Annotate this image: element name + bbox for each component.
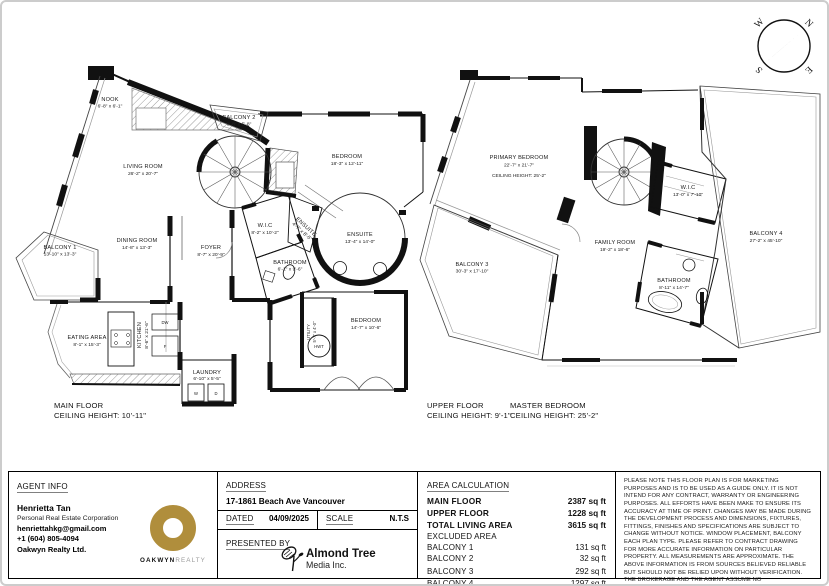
dated-label: DATED <box>226 514 254 525</box>
agent-title: Personal Real Estate Corporation <box>17 515 137 522</box>
svg-text:6'-1" x 9'-6": 6'-1" x 9'-6" <box>278 267 303 273</box>
svg-text:CEILING HEIGHT: 25'-2": CEILING HEIGHT: 25'-2" <box>510 411 598 420</box>
svg-text:8'-11" x 14'-7": 8'-11" x 14'-7" <box>659 285 689 291</box>
room-label-nook: NOOK 6'-8" x 6'-1" <box>98 97 123 110</box>
room-label-bathroom-main: BATHROOM 6'-1" x 9'-6" <box>273 260 307 273</box>
main-floor-title: MAIN FLOOR CEILING HEIGHT: 10'-11" <box>54 401 146 420</box>
svg-text:19'-2" x 18'-6": 19'-2" x 18'-6" <box>600 247 630 253</box>
room-label-family-room: FAMILY ROOM 19'-2" x 18'-6" <box>595 240 636 253</box>
svg-text:14'-8" x 13'-3": 14'-8" x 13'-3" <box>122 245 152 251</box>
svg-text:30'-3" x 17'-10": 30'-3" x 17'-10" <box>456 269 489 275</box>
almond-tree-logo: Almond Tree Media Inc. <box>280 544 376 574</box>
svg-text:NOOK: NOOK <box>101 97 118 103</box>
upper-floor-title: UPPER FLOOR CEILING HEIGHT: 9'-1" <box>427 401 511 420</box>
info-bar: AGENT INFO Henrietta Tan Personal Real E… <box>8 471 821 579</box>
area-row-balcony-2: BALCONY 232 sq ft <box>427 554 606 563</box>
room-label-wic-main: W.I.C 8'-2" x 10'-2" <box>251 223 279 236</box>
svg-text:BALCONY 4: BALCONY 4 <box>749 231 782 237</box>
svg-text:13'-10" x 13'-3": 13'-10" x 13'-3" <box>44 252 77 258</box>
dryer-label: D <box>214 391 217 396</box>
room-label-living-room: LIVING ROOM 26'-2" x 20'-7" <box>123 164 163 177</box>
svg-text:8'-6" x 21'-6": 8'-6" x 21'-6" <box>144 321 150 349</box>
svg-text:BALCONY 1: BALCONY 1 <box>43 245 76 251</box>
svg-text:27'-2" x 45'-10": 27'-2" x 45'-10" <box>750 238 783 244</box>
svg-text:6'-8" x 6'-1": 6'-8" x 6'-1" <box>98 104 123 110</box>
room-label-ensuite: ENSUITE 13'-4" x 14'-0" <box>345 232 375 245</box>
area-calculation-header: AREA CALCULATION <box>427 481 509 492</box>
svg-text:KITCHEN: KITCHEN <box>137 322 143 348</box>
svg-text:8'-8" x 5'-8": 8'-8" x 5'-8" <box>227 122 252 128</box>
svg-text:BATHROOM: BATHROOM <box>657 278 691 284</box>
main-floor-plan: NOOK 6'-8" x 6'-1" BALCONY 2 8'-8" x 5'-… <box>16 66 423 420</box>
room-label-kitchen: KITCHEN 8'-6" x 21'-6" <box>137 321 150 349</box>
compass-circle <box>758 20 810 72</box>
fridge-label: F <box>164 344 167 349</box>
svg-text:UTILITY: UTILITY <box>306 324 311 340</box>
scale-value: N.T.S <box>389 514 409 523</box>
svg-text:MASTER BEDROOM: MASTER BEDROOM <box>510 401 586 410</box>
svg-text:W.I.C: W.I.C <box>258 223 273 229</box>
room-label-foyer: FOYER 8'-7" x 20'-9" <box>197 245 225 258</box>
svg-text:PRIMARY BEDROOM: PRIMARY BEDROOM <box>490 155 549 161</box>
area-row-balcony-1: BALCONY 1131 sq ft <box>427 543 606 552</box>
svg-text:13'-0" x 7'-10": 13'-0" x 7'-10" <box>673 192 703 198</box>
room-label-balcony-4: BALCONY 4 27'-2" x 45'-10" <box>749 231 782 244</box>
hwt-label: HWT <box>314 344 324 349</box>
almond-tree-icon <box>280 544 306 574</box>
svg-text:FAMILY ROOM: FAMILY ROOM <box>595 240 636 246</box>
room-label-primary-bedroom: PRIMARY BEDROOM 22'-7" x 21'-7" CEILING … <box>490 155 549 179</box>
svg-text:CEILING HEIGHT: 10'-11": CEILING HEIGHT: 10'-11" <box>54 411 146 420</box>
agent-info-section: AGENT INFO Henrietta Tan Personal Real E… <box>9 472 217 578</box>
svg-text:BALCONY 3: BALCONY 3 <box>455 262 488 268</box>
agent-email: henriettahkg@gmail.com <box>17 524 137 533</box>
svg-text:BEDROOM: BEDROOM <box>332 154 362 160</box>
room-label-laundry: LAUNDRY 6'-10" x 5'-5" <box>193 370 221 382</box>
svg-text:BEDROOM: BEDROOM <box>351 318 381 324</box>
compass-east: E <box>803 64 814 75</box>
compass-rose: W N S E <box>753 17 814 75</box>
dishwasher-label: DW <box>162 320 169 325</box>
room-label-bedroom-2: BEDROOM 14'-7" x 10'-6" <box>351 318 381 331</box>
floor-plans-drawing: NOOK 6'-8" x 6'-1" BALCONY 2 8'-8" x 5'-… <box>2 2 829 464</box>
room-label-bedroom-top: BEDROOM 18'-3" x 12'-11" <box>331 154 364 167</box>
floor-plan-sheet: NOOK 6'-8" x 6'-1" BALCONY 2 8'-8" x 5'-… <box>0 0 829 586</box>
area-row-total-living: TOTAL LIVING AREA3615 sq ft <box>427 520 606 530</box>
address-header: ADDRESS <box>226 481 266 492</box>
room-label-wic-upper: W.I.C 13'-0" x 7'-10" <box>673 185 703 198</box>
svg-text:14'-7" x 10'-6": 14'-7" x 10'-6" <box>351 325 381 331</box>
address-value: 17-1861 Beach Ave Vancouver <box>218 494 417 511</box>
agent-phone: +1 (604) 805-4094 <box>17 534 137 543</box>
master-bedroom-title: MASTER BEDROOM CEILING HEIGHT: 25'-2" <box>510 401 598 420</box>
svg-text:8'-1" x 15'-3": 8'-1" x 15'-3" <box>73 342 101 348</box>
svg-text:26'-2" x 20'-7": 26'-2" x 20'-7" <box>128 171 158 177</box>
svg-text:BATHROOM: BATHROOM <box>273 260 307 266</box>
oakwyn-logo-subtext: REALTY <box>175 557 206 564</box>
area-row-balcony-3: BALCONY 3292 sq ft <box>427 567 606 576</box>
agent-name: Henrietta Tan <box>17 503 137 513</box>
room-label-dining-room: DINING ROOM 14'-8" x 13'-3" <box>117 238 158 251</box>
spiral-staircase-upper <box>591 139 657 205</box>
svg-text:DINING ROOM: DINING ROOM <box>117 238 158 244</box>
svg-text:6'-10" x 5'-5": 6'-10" x 5'-5" <box>193 376 221 382</box>
area-calculation-section: AREA CALCULATION MAIN FLOOR2387 sq ft UP… <box>417 472 615 578</box>
room-label-balcony-1: BALCONY 1 13'-10" x 13'-3" <box>43 245 76 258</box>
room-label-utility: UTILITY 5'-7" x 4'-0" <box>306 321 317 343</box>
upper-floor-walls <box>420 70 820 366</box>
area-row-main-floor: MAIN FLOOR2387 sq ft <box>427 496 606 506</box>
disclaimer-section: PLEASE NOTE THIS FLOOR PLAN IS FOR MARKE… <box>615 472 820 578</box>
scale-label: SCALE <box>326 514 353 525</box>
disclaimer-text: PLEASE NOTE THIS FLOOR PLAN IS FOR MARKE… <box>624 478 812 586</box>
round-ensuite <box>312 193 406 283</box>
dated-value: 04/09/2025 <box>269 514 309 523</box>
svg-text:18'-3" x 12'-11": 18'-3" x 12'-11" <box>331 161 364 167</box>
svg-text:CEILING HEIGHT: 9'-1": CEILING HEIGHT: 9'-1" <box>427 411 511 420</box>
room-label-bathroom-upper: BATHROOM 8'-11" x 14'-7" <box>657 278 691 291</box>
agent-info-header: AGENT INFO <box>17 482 68 493</box>
room-label-eating-area: EATING AREA 8'-1" x 15'-3" <box>67 335 106 348</box>
oakwyn-logo-text: OAKWYN <box>140 557 175 564</box>
address-section: ADDRESS 17-1861 Beach Ave Vancouver DATE… <box>217 472 417 578</box>
spiral-staircase-main <box>199 136 271 208</box>
svg-text:22'-7" x 21'-7": 22'-7" x 21'-7" <box>504 163 534 169</box>
svg-text:8'-2" x 10'-2": 8'-2" x 10'-2" <box>251 230 279 236</box>
washer-label: W <box>194 391 198 396</box>
svg-text:13'-4" x 14'-0": 13'-4" x 14'-0" <box>345 239 375 245</box>
area-row-upper-floor: UPPER FLOOR1228 sq ft <box>427 508 606 518</box>
svg-text:LAUNDRY: LAUNDRY <box>193 370 221 376</box>
svg-text:EATING AREA: EATING AREA <box>67 335 106 341</box>
room-label-balcony-3: BALCONY 3 30'-3" x 17'-10" <box>455 262 488 275</box>
svg-text:8'-7" x 20'-9": 8'-7" x 20'-9" <box>197 252 225 258</box>
svg-text:MAIN FLOOR: MAIN FLOOR <box>54 401 104 410</box>
svg-text:BALCONY 2: BALCONY 2 <box>222 115 255 121</box>
svg-text:FOYER: FOYER <box>201 245 221 251</box>
area-row-balcony-4: BALCONY 41297 sq ft <box>427 579 606 586</box>
agent-company: Oakwyn Realty Ltd. <box>17 545 137 554</box>
area-row-excluded: EXCLUDED AREA <box>427 532 606 541</box>
compass-south: S <box>754 64 765 75</box>
almond-tree-name: Almond Tree <box>306 548 376 560</box>
oakwyn-logo: OAKWYNREALTY <box>137 503 209 564</box>
svg-text:CEILING HEIGHT: 25'-2": CEILING HEIGHT: 25'-2" <box>492 173 546 179</box>
svg-text:W.I.C: W.I.C <box>681 185 696 191</box>
svg-text:UPPER FLOOR: UPPER FLOOR <box>427 401 484 410</box>
svg-text:5'-7" x 4'-0": 5'-7" x 4'-0" <box>312 321 317 343</box>
upper-floor-plan: PRIMARY BEDROOM 22'-7" x 21'-7" CEILING … <box>420 70 820 420</box>
compass-needle-icon <box>766 34 799 62</box>
compass-north: N <box>802 18 814 30</box>
almond-tree-subname: Media Inc. <box>306 560 376 570</box>
svg-text:LIVING ROOM: LIVING ROOM <box>123 164 163 170</box>
oakwyn-ring-icon <box>150 505 196 551</box>
upper-floor-labels: PRIMARY BEDROOM 22'-7" x 21'-7" CEILING … <box>427 155 783 420</box>
svg-text:ENSUITE: ENSUITE <box>347 232 373 238</box>
